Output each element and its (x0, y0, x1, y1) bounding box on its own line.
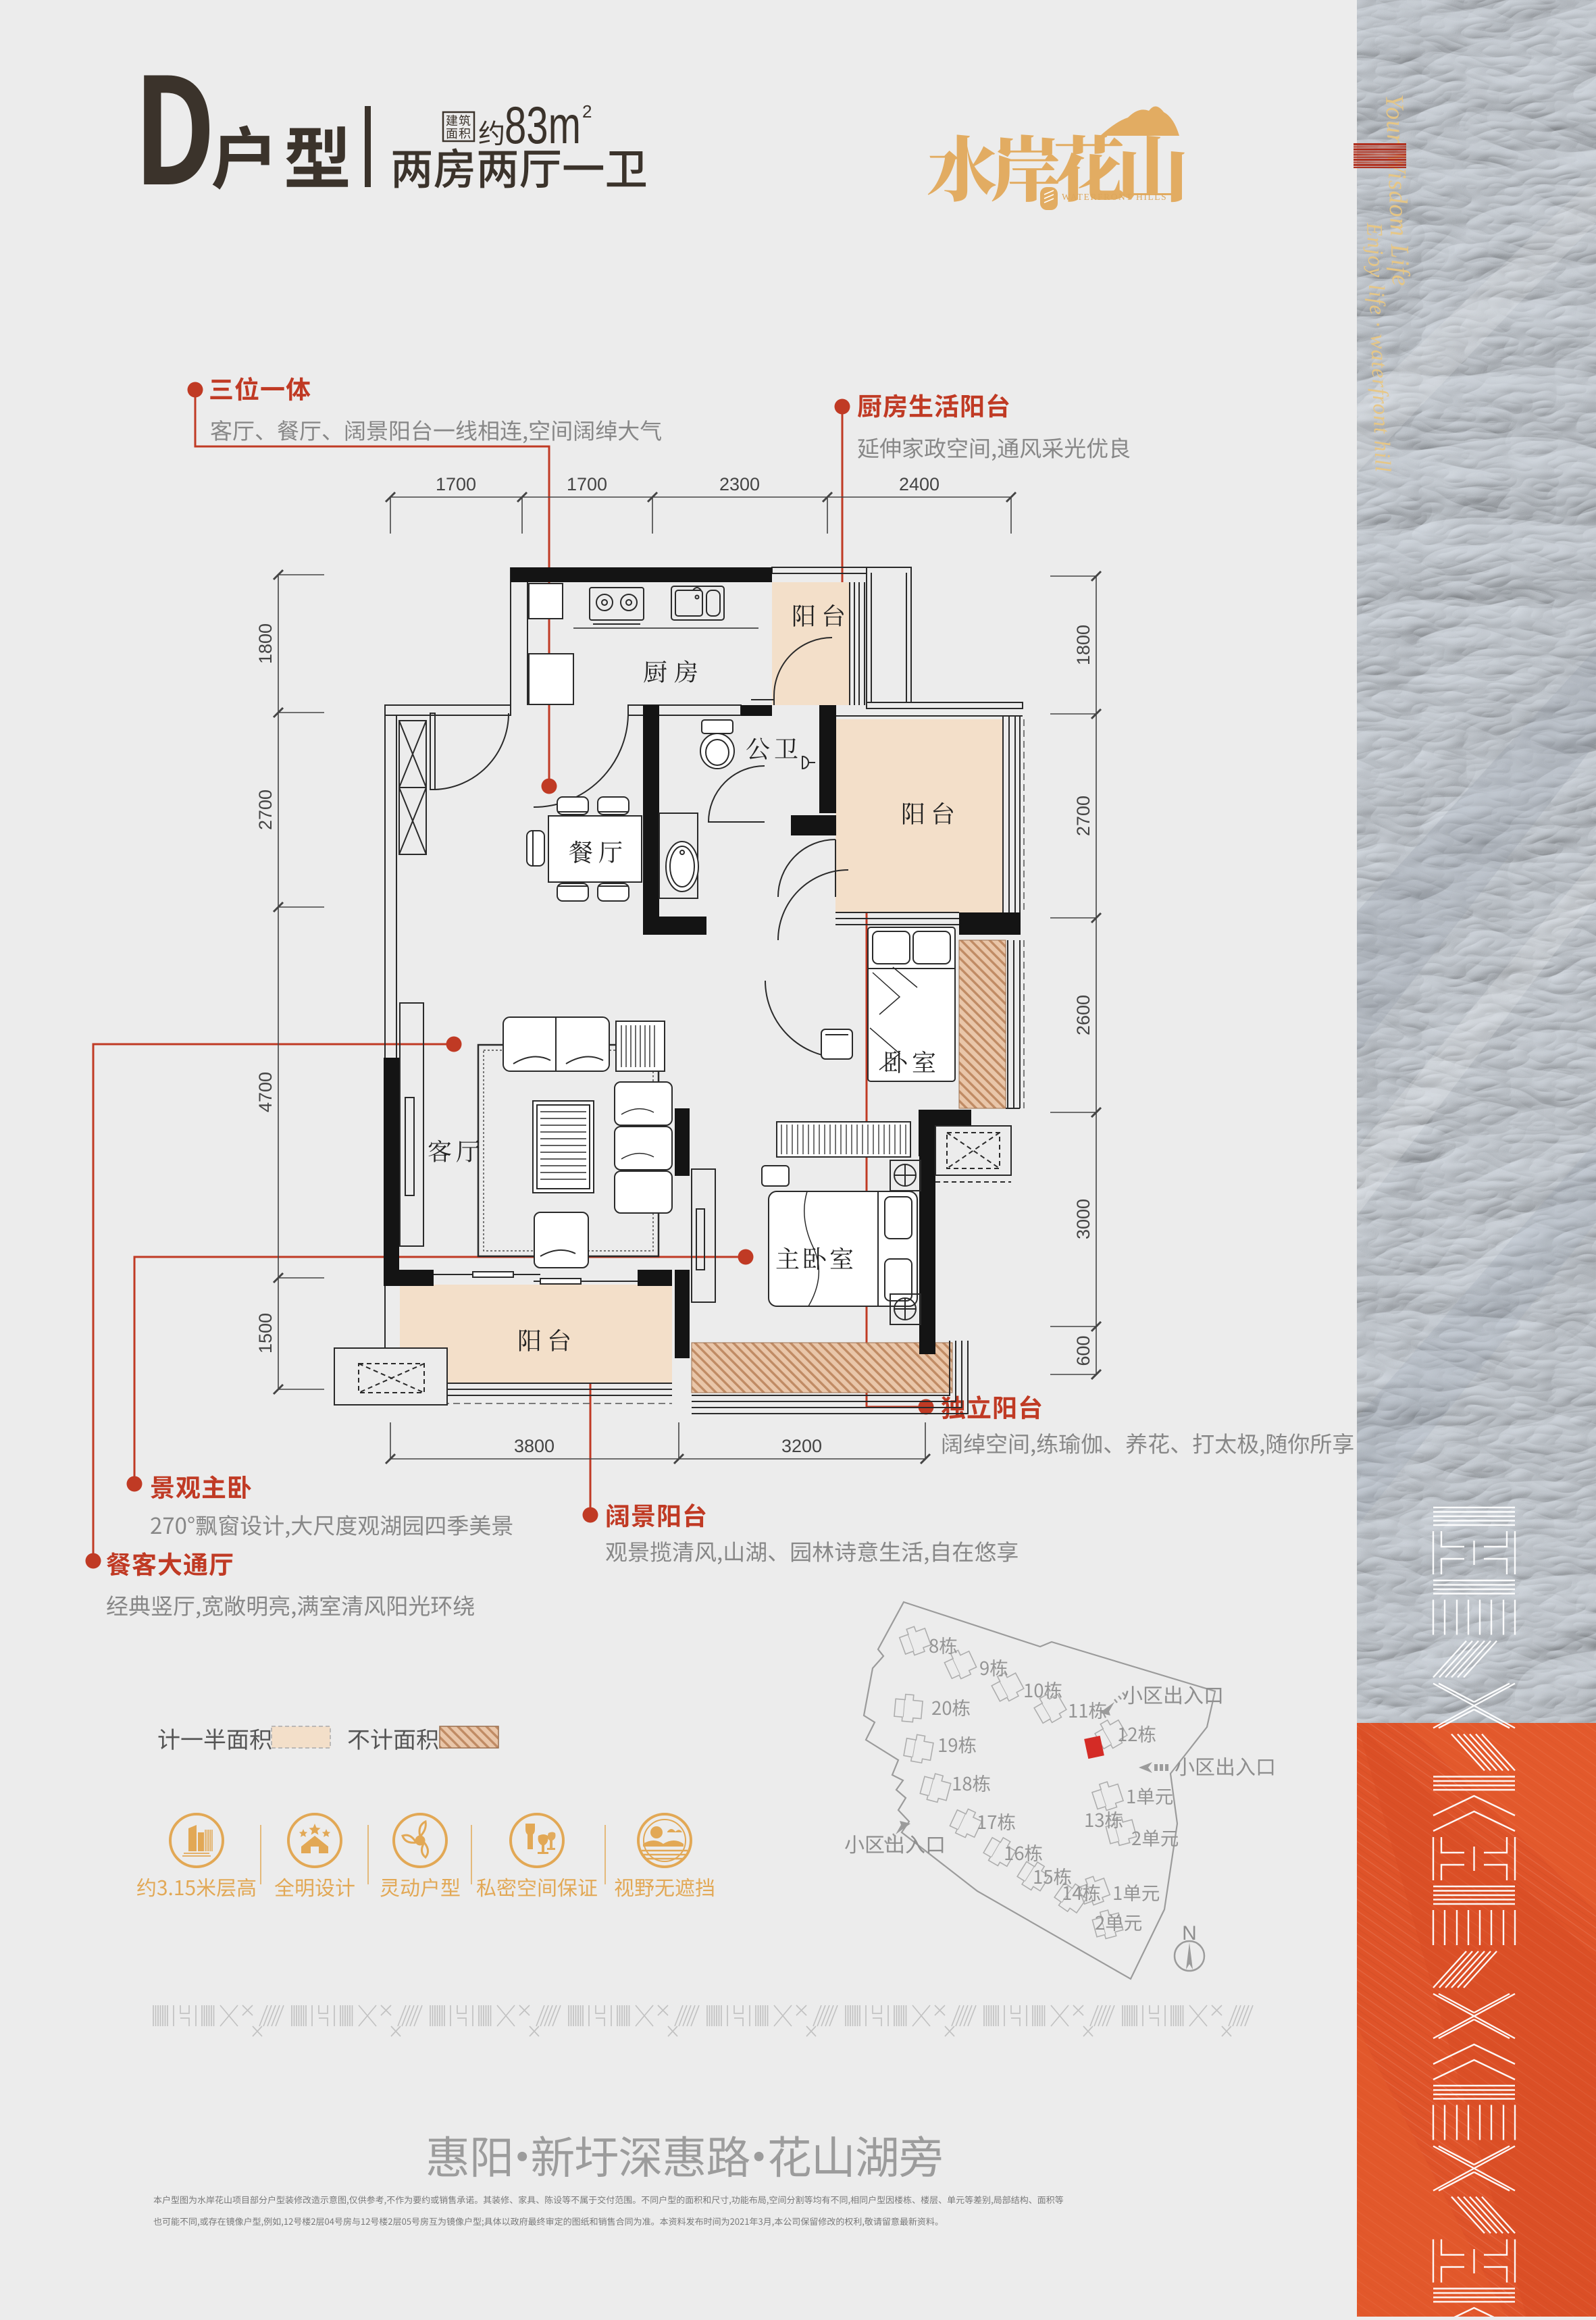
svg-text:WATERFRONT HILLS: WATERFRONT HILLS (1062, 192, 1167, 202)
svg-text:2: 2 (582, 101, 592, 122)
svg-text:4700: 4700 (255, 1072, 276, 1112)
svg-text:N: N (1182, 1922, 1197, 1944)
svg-text:2700: 2700 (255, 790, 276, 830)
svg-text:3200: 3200 (781, 1436, 822, 1456)
svg-text:2600: 2600 (1073, 995, 1093, 1035)
svg-text:83m: 83m (505, 95, 581, 155)
svg-text:3000: 3000 (1073, 1199, 1093, 1239)
svg-text:1700: 1700 (567, 474, 607, 494)
svg-text:1700: 1700 (436, 474, 476, 494)
svg-text:2400: 2400 (899, 474, 939, 494)
svg-text:3800: 3800 (514, 1436, 555, 1456)
svg-text:2300: 2300 (719, 474, 760, 494)
svg-text:2700: 2700 (1073, 796, 1093, 836)
svg-text:1800: 1800 (255, 623, 276, 664)
svg-text:1500: 1500 (255, 1313, 276, 1354)
svg-text:1800: 1800 (1073, 625, 1093, 665)
svg-text:600: 600 (1073, 1335, 1093, 1366)
